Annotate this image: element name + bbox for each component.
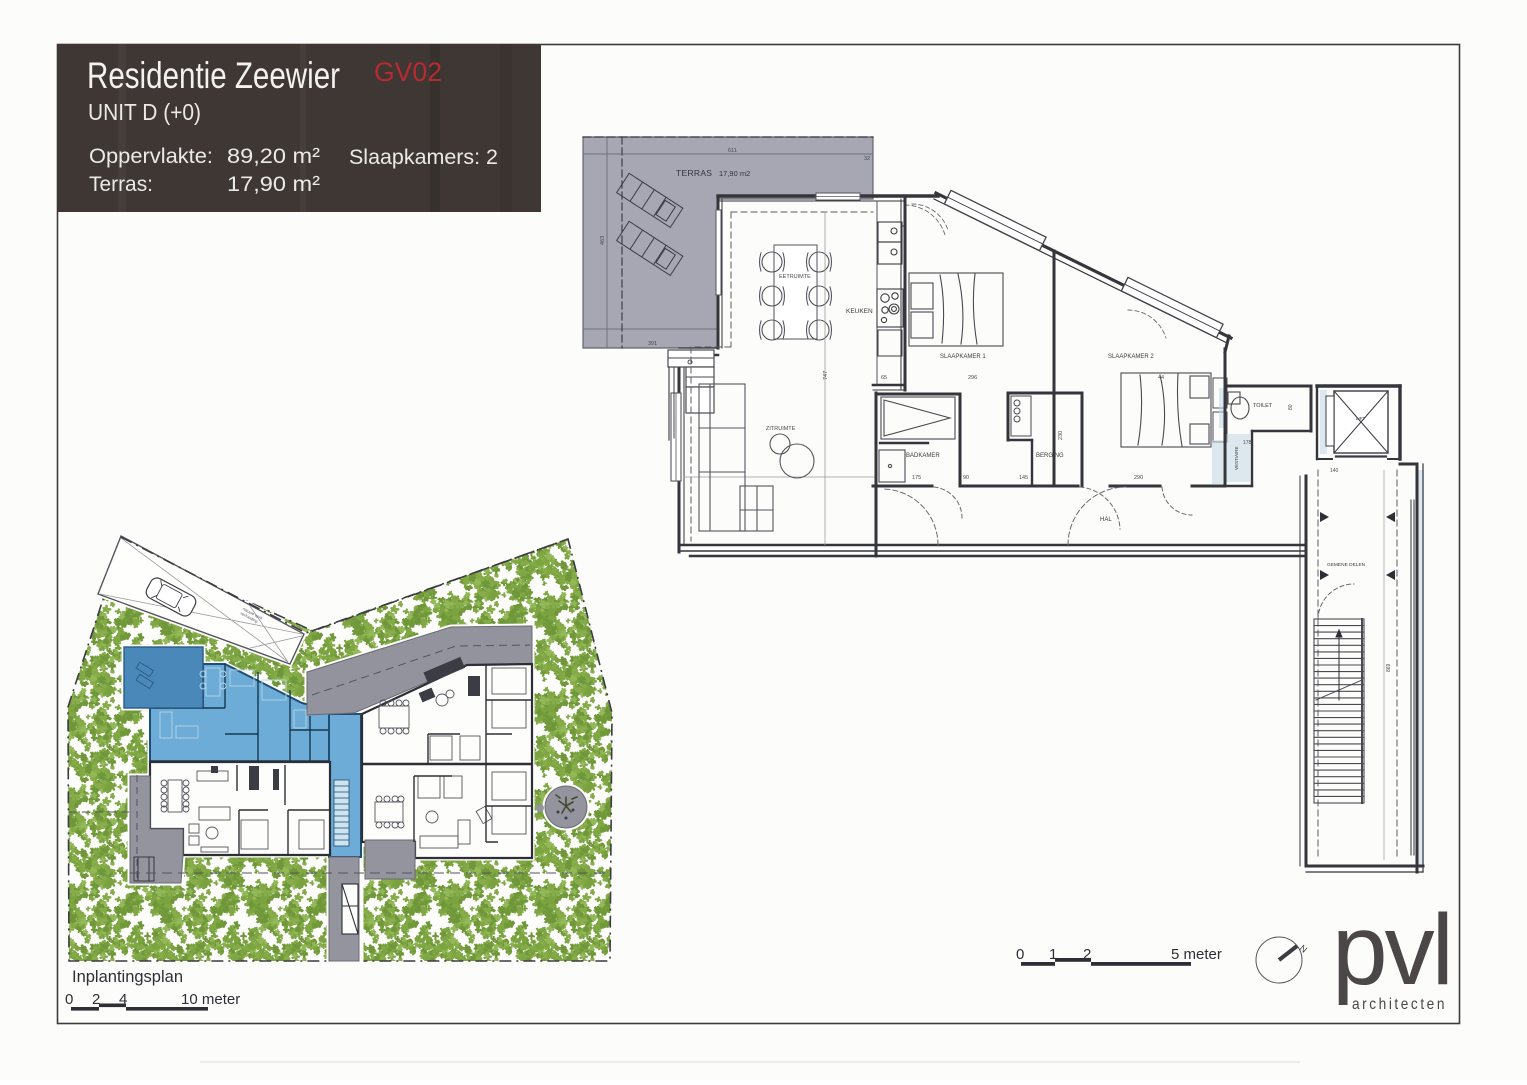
svg-text:HAL: HAL: [1100, 517, 1112, 523]
svg-text:Residentie Zeewier: Residentie Zeewier: [87, 55, 340, 96]
svg-text:ZITRUIMTE: ZITRUIMTE: [766, 426, 796, 432]
svg-text:SLAAPKAMER 1: SLAAPKAMER 1: [940, 354, 986, 360]
svg-text:0: 0: [65, 991, 73, 1008]
svg-text:VESTIAIRE: VESTIAIRE: [1234, 446, 1239, 470]
svg-text:44: 44: [1158, 375, 1164, 381]
svg-text:17,90 m²: 17,90 m²: [227, 172, 320, 196]
svg-text:5 meter: 5 meter: [1171, 946, 1222, 963]
svg-text:LIFT: LIFT: [1356, 416, 1366, 421]
svg-text:869: 869: [1386, 663, 1392, 672]
svg-text:32: 32: [864, 156, 870, 162]
svg-text:747: 747: [823, 371, 829, 380]
svg-text:BERGING: BERGING: [1036, 453, 1064, 459]
svg-text:178: 178: [1243, 440, 1252, 446]
svg-text:175: 175: [912, 475, 921, 481]
svg-text:0: 0: [1016, 946, 1024, 963]
svg-text:TERRAS: TERRAS: [676, 168, 712, 178]
svg-text:UNIT D (+0): UNIT D (+0): [88, 99, 201, 125]
svg-text:EETRUIMTE: EETRUIMTE: [779, 274, 811, 280]
svg-text:140: 140: [1330, 468, 1339, 474]
svg-text:10 meter: 10 meter: [181, 991, 240, 1008]
svg-text:65: 65: [881, 375, 887, 381]
svg-text:17,90 m2: 17,90 m2: [719, 169, 750, 178]
svg-text:BADKAMER: BADKAMER: [906, 453, 940, 459]
svg-text:80: 80: [1288, 404, 1294, 410]
svg-text:Slaapkamers: 2: Slaapkamers: 2: [349, 145, 498, 169]
svg-text:GEMENE DELEN: GEMENE DELEN: [1327, 562, 1366, 568]
svg-text:TOILET: TOILET: [1253, 403, 1273, 409]
svg-text:pvl: pvl: [1332, 894, 1451, 1006]
svg-text:230: 230: [1058, 431, 1064, 440]
svg-text:GV02: GV02: [374, 57, 442, 87]
svg-text:145: 145: [1019, 475, 1028, 481]
svg-text:KEUKEN: KEUKEN: [846, 308, 873, 315]
svg-text:296: 296: [968, 375, 977, 381]
svg-text:Terras:: Terras:: [89, 172, 153, 196]
svg-text:89,20 m²: 89,20 m²: [227, 144, 320, 168]
svg-text:611: 611: [728, 148, 737, 154]
svg-text:Inplantingsplan: Inplantingsplan: [72, 968, 183, 986]
svg-text:architecten: architecten: [1352, 996, 1447, 1013]
svg-text:391: 391: [648, 341, 657, 347]
svg-text:Oppervlakte:: Oppervlakte:: [89, 144, 213, 168]
svg-text:290: 290: [1134, 475, 1143, 481]
svg-text:90: 90: [963, 475, 969, 481]
svg-text:463: 463: [600, 236, 606, 245]
svg-text:SLAAPKAMER 2: SLAAPKAMER 2: [1108, 354, 1154, 360]
